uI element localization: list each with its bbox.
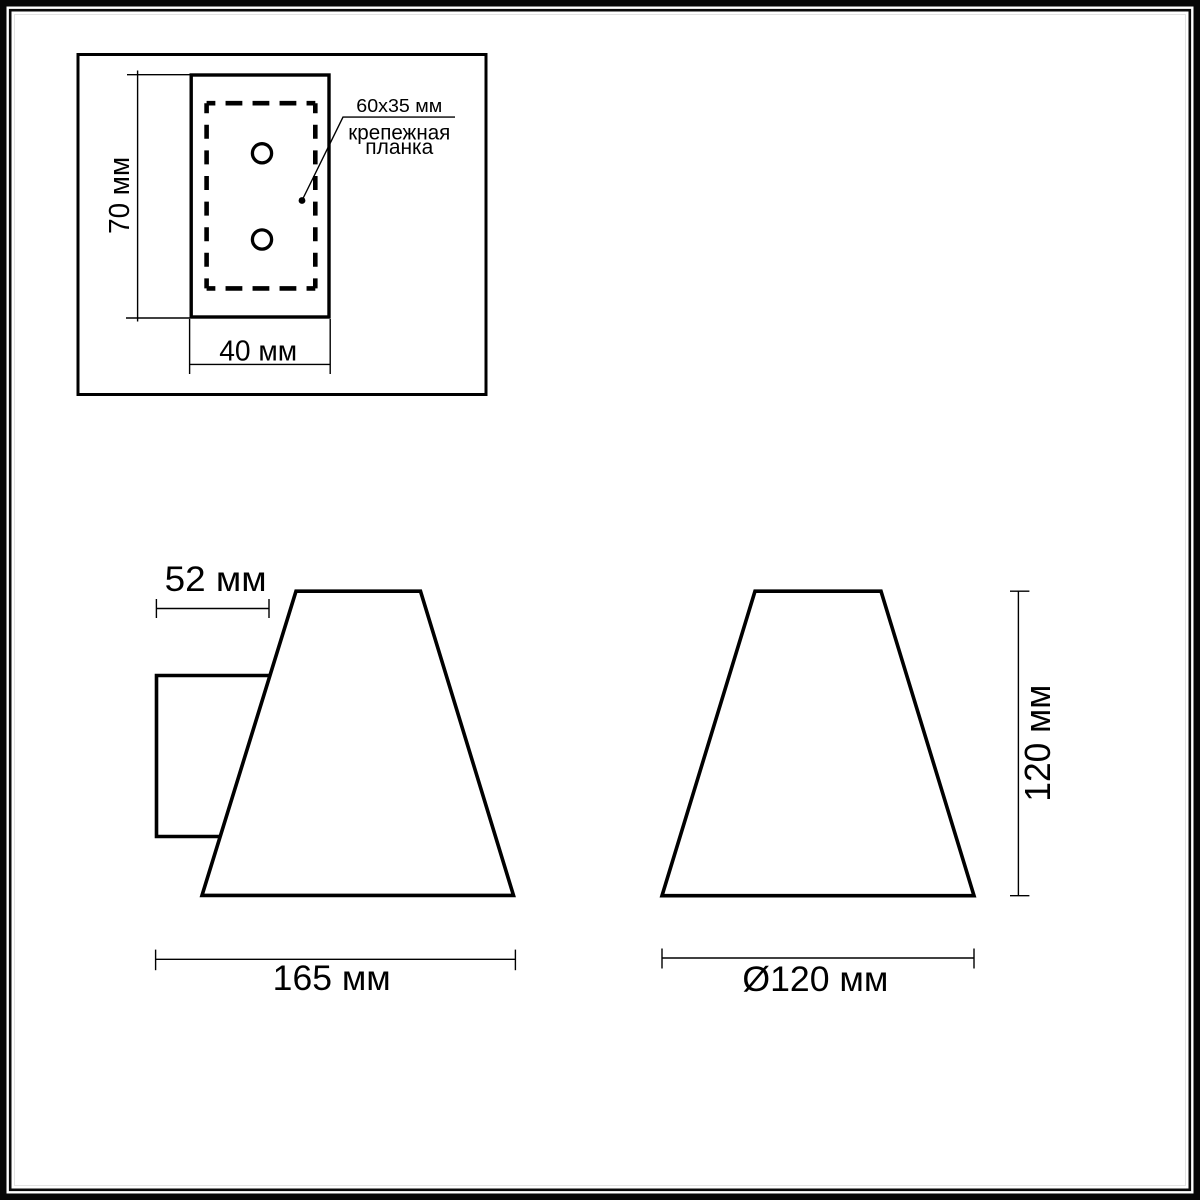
- svg-text:60x35 мм: 60x35 мм: [356, 96, 442, 116]
- svg-text:120 мм: 120 мм: [1017, 685, 1058, 802]
- svg-text:52 мм: 52 мм: [165, 560, 267, 599]
- svg-text:Ø120 мм: Ø120 мм: [742, 960, 888, 999]
- svg-text:40 мм: 40 мм: [219, 335, 297, 367]
- svg-text:165 мм: 165 мм: [273, 959, 391, 998]
- svg-text:планка: планка: [365, 136, 433, 159]
- svg-text:70 мм: 70 мм: [104, 157, 136, 234]
